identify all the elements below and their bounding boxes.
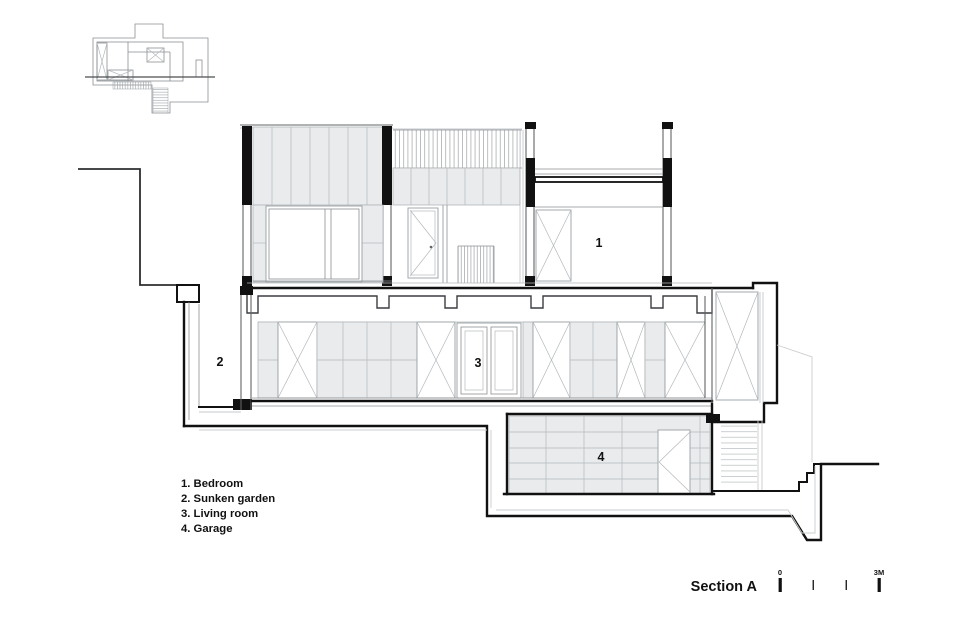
legend-item-sunken-garden: 2. Sunken garden [181,493,275,505]
lower-level: 4 [504,404,822,494]
room-garage: 4 [504,404,720,494]
interior-door [408,208,438,278]
room-label-garage: 4 [598,450,605,464]
x-panel [417,322,455,398]
scale-end-label: 3M [874,568,884,577]
legend-item-garage: 4. Garage [181,523,233,535]
middle-level: 2 [177,283,812,462]
title-block: Section A 0 3M [691,568,885,595]
scale-zero-label: 0 [778,568,782,577]
scale-bar: 0 3M [778,568,884,592]
x-panel [617,322,645,398]
living-floor [252,398,712,406]
right-wall [712,283,777,422]
legend-item-living-room: 3. Living room [181,508,258,520]
sliding-window [266,206,362,282]
room-label-living: 3 [475,356,482,370]
room-label-bedroom: 1 [596,236,603,250]
x-panel [533,322,570,398]
key-plan [85,24,215,113]
x-panel [665,322,705,398]
terrace-railing [393,129,522,168]
window-band [253,205,392,282]
cut-column-mid [382,126,392,286]
upper-floor: 1 [240,122,673,286]
stair-railing [458,246,494,283]
scale-tick-minor [846,580,847,590]
scale-tick-minor [813,580,814,590]
key-plan-stair-run [153,88,168,113]
key-plan-stair-hatch [113,82,151,89]
room-sunken-garden: 2 [177,285,253,426]
key-plan-bench [108,70,133,80]
scale-tick-major [779,578,782,592]
ground-line-left [78,169,177,285]
cut-column-left [242,126,252,286]
legend-item-bedroom: 1. Bedroom [181,478,243,490]
drawing-title: Section A [691,579,758,595]
architectural-section-sheet: 1 2 [0,0,960,639]
terrain-lines [777,345,812,462]
key-plan-shaft [97,43,107,80]
section-drawing-svg: 1 2 [0,0,960,639]
key-plan-rooflight [147,48,164,62]
room-bedroom: 1 [535,207,663,281]
wardrobe-panel [536,210,571,281]
cladding-panels-left [253,127,383,205]
exterior-stair [721,420,762,490]
scale-tick-major [878,578,881,592]
garage-door-panel [658,430,690,494]
room-label-sunken-garden: 2 [217,355,224,369]
x-panel [278,322,317,398]
floor-slab [247,283,753,313]
room-living: 3 [258,296,705,398]
cladding-panels-mid [393,168,520,205]
glazed-door [457,323,521,398]
legend: 1. Bedroom 2. Sunken garden 3. Living ro… [181,478,275,535]
